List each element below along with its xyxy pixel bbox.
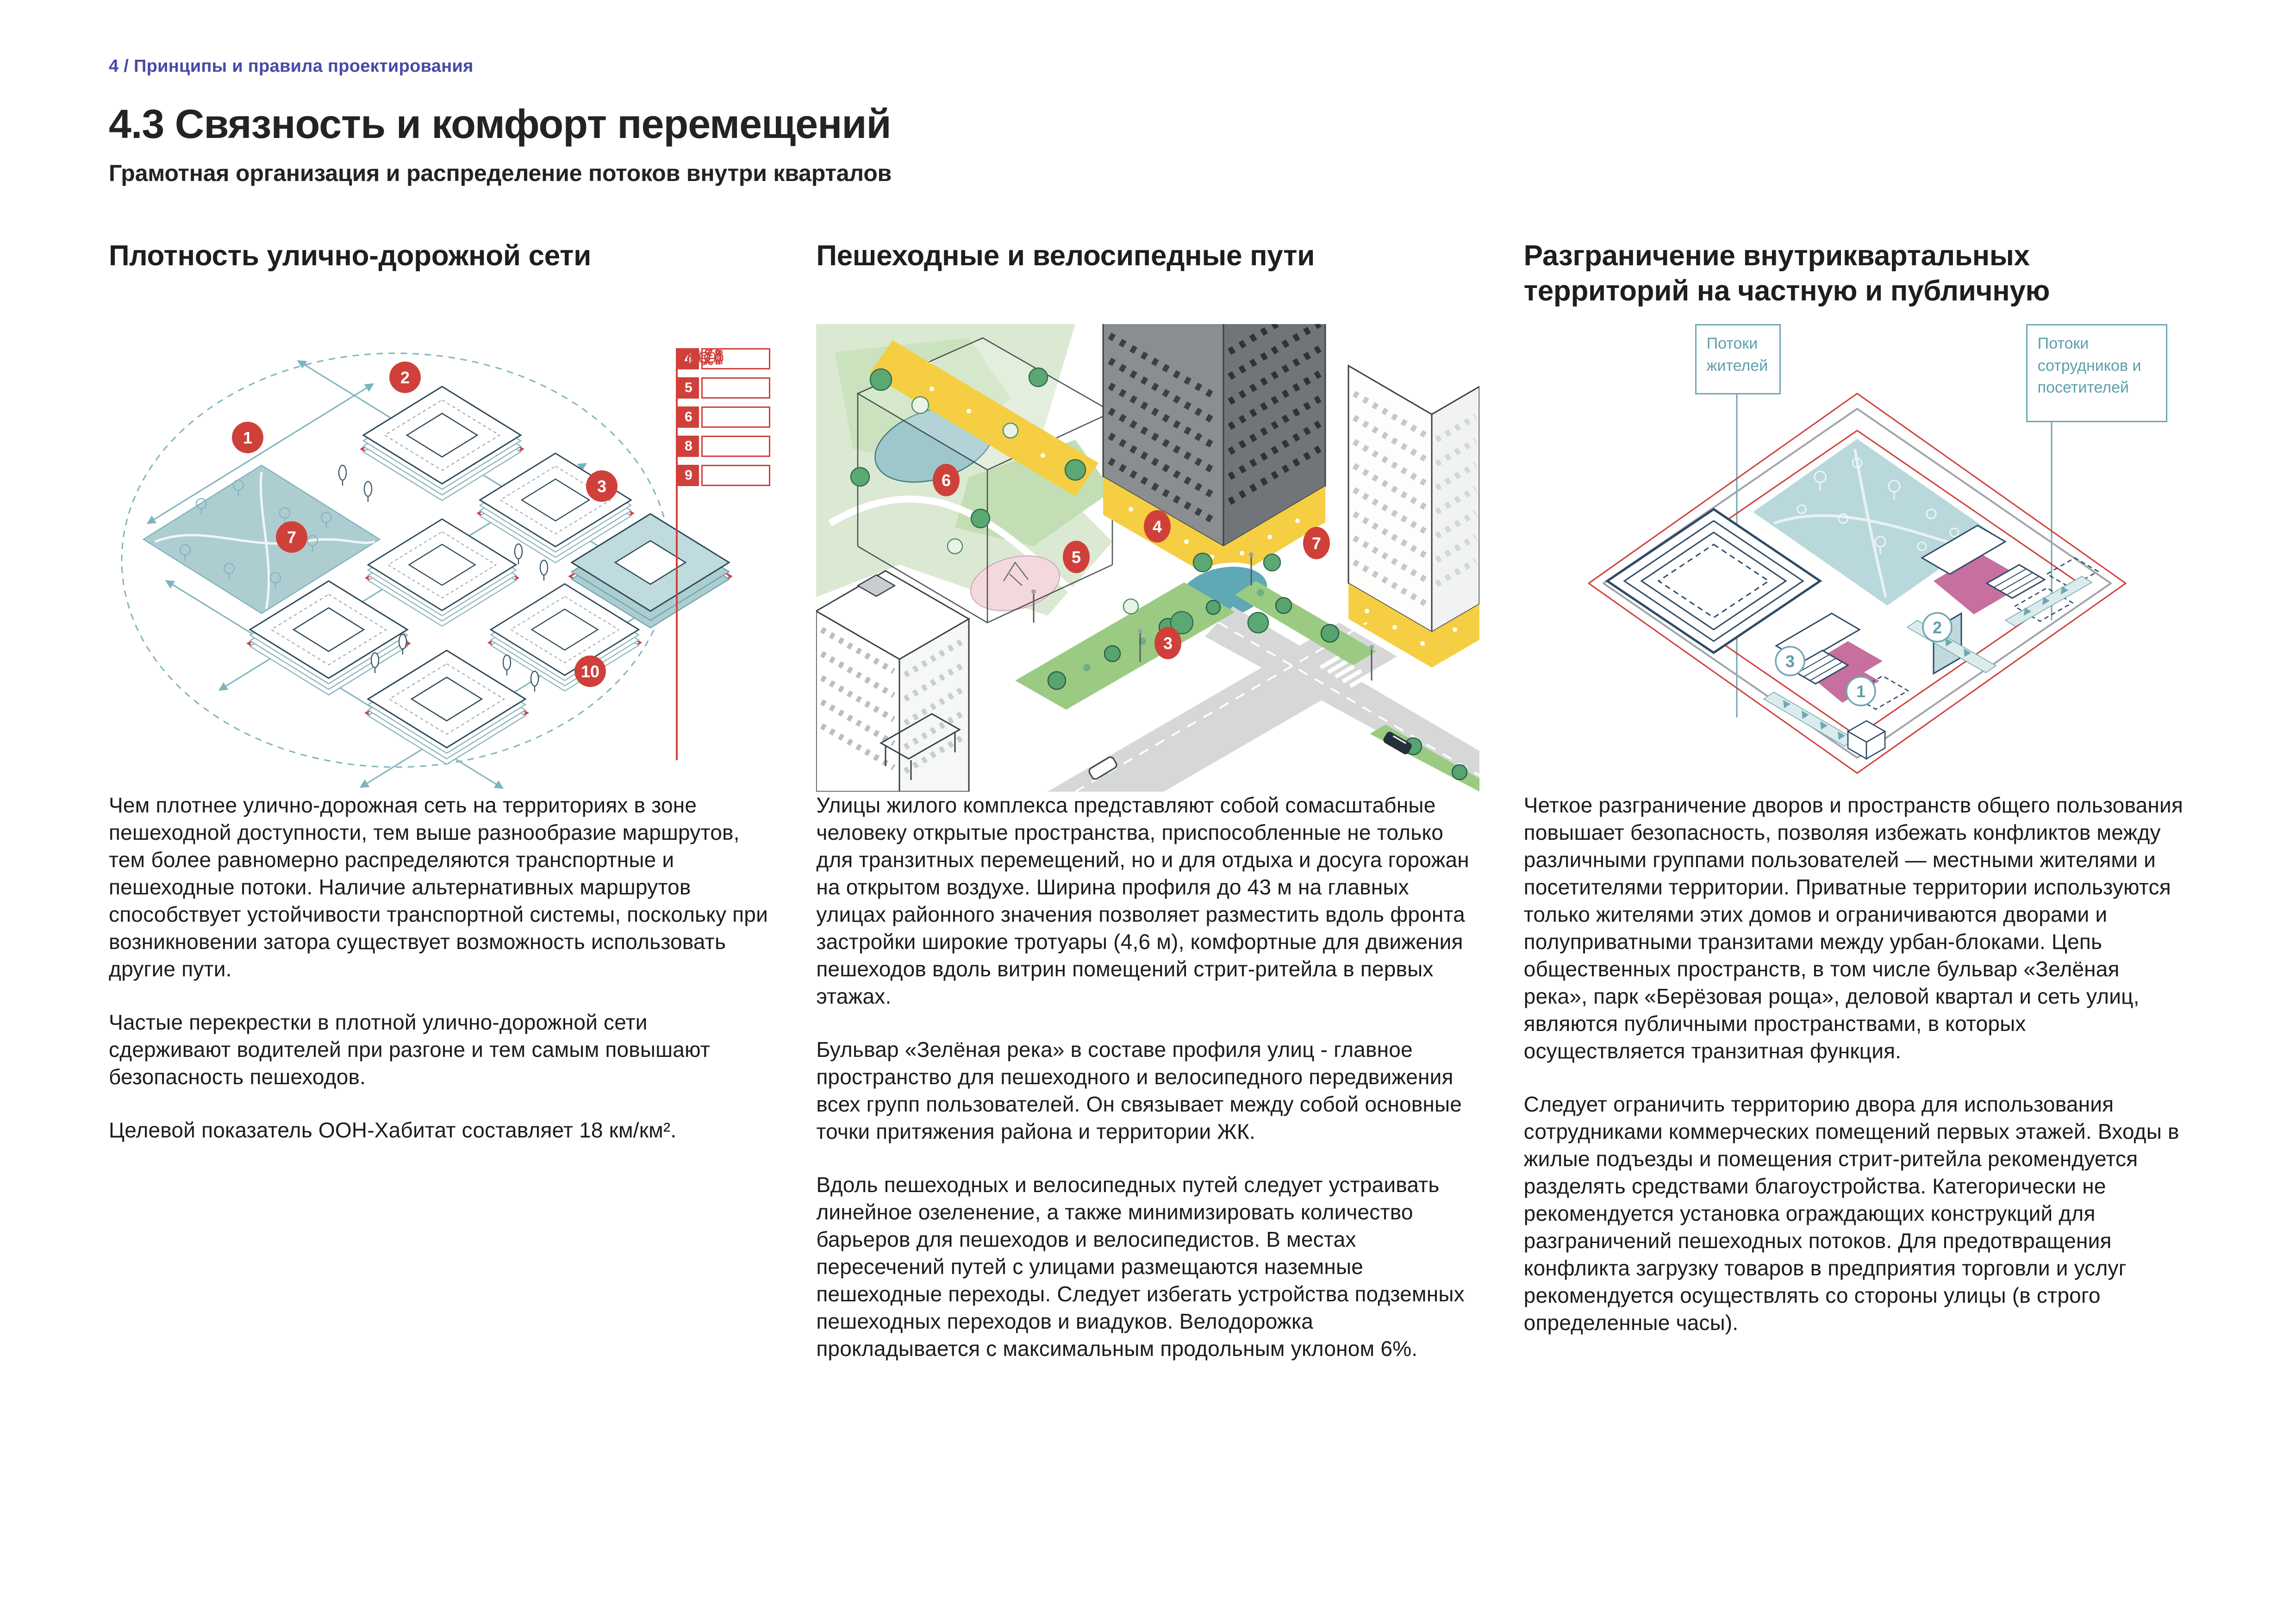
- marker-10: 10: [574, 656, 606, 687]
- lower-left-building: [816, 571, 969, 792]
- svg-text:3: 3: [1163, 634, 1173, 653]
- white-building: [1348, 366, 1479, 632]
- figure-streetscape: 6 5 4 3 7: [816, 324, 1479, 792]
- column-body-ped-bike: Улицы жилого комплекса представляют собо…: [816, 792, 1479, 1362]
- svg-text:7: 7: [1312, 534, 1321, 553]
- column-ped-bike-paths: Пешеходные и велосипедные пути: [816, 238, 1479, 1362]
- paragraph: Бульвар «Зелёная река» в составе профиля…: [816, 1036, 1479, 1145]
- svg-text:1: 1: [243, 428, 252, 447]
- legend-number: 9: [678, 465, 699, 486]
- small-building: [1848, 721, 1885, 759]
- paragraph: Частые перекрестки в плотной улично-доро…: [109, 1009, 772, 1091]
- marker-1: 1: [232, 422, 263, 453]
- marker-5: 5: [1063, 541, 1090, 573]
- svg-text:5: 5: [1072, 548, 1081, 567]
- marker-2: 2: [1923, 613, 1952, 642]
- page-title: 4.3 Связность и комфорт перемещений: [109, 100, 2187, 148]
- marker-6: 6: [933, 464, 960, 496]
- svg-text:2: 2: [1933, 618, 1942, 637]
- breadcrumb: 4 / Принципы и правила проектирования: [109, 0, 2187, 76]
- legend-number: 8: [678, 436, 699, 457]
- column-territory-division: Разграничение внутриквартальных территор…: [1524, 238, 2187, 1362]
- svg-text:10: 10: [581, 662, 599, 681]
- svg-text:1: 1: [1856, 682, 1865, 701]
- streetscape-illustration: 6 5 4 3 7: [816, 324, 1479, 792]
- marker-4: 4: [1144, 510, 1171, 543]
- street-network-diagram: 1 2 7 3 10: [109, 324, 772, 792]
- tram-icon: [678, 348, 737, 366]
- paragraph: Улицы жилого комплекса представляют собо…: [816, 792, 1479, 1010]
- page-subtitle: Грамотная организация и распределение по…: [109, 160, 2187, 187]
- figure-legend: 4 5: [678, 348, 770, 486]
- column-heading-street-network: Плотность улично-дорожной сети: [109, 238, 772, 324]
- marker-1: 1: [1847, 677, 1875, 706]
- marker-3: 3: [1154, 627, 1181, 659]
- flow-label-residents: Потоки жителей: [1695, 324, 1781, 394]
- legend-row: 5: [678, 377, 770, 399]
- svg-text:2: 2: [400, 368, 410, 387]
- marker-7: 7: [1303, 527, 1330, 559]
- paragraph: Целевой показатель ООН-Хабитат составляе…: [109, 1117, 772, 1144]
- column-street-network: Плотность улично-дорожной сети: [109, 238, 772, 1362]
- marker-3: 3: [1776, 647, 1804, 675]
- legend-number: 6: [678, 406, 699, 428]
- legend-number: 5: [678, 377, 699, 399]
- legend-row: 9: [678, 465, 770, 486]
- marker-2: 2: [389, 362, 421, 393]
- column-body-street-network: Чем плотнее улично-дорожная сеть на терр…: [109, 792, 772, 1144]
- figure-street-network: 1 2 7 3 10 4: [109, 324, 772, 792]
- svg-text:4: 4: [1153, 517, 1162, 536]
- flow-label-staff: Потоки сотрудников и посетителей: [2026, 324, 2167, 422]
- svg-text:6: 6: [942, 471, 951, 490]
- svg-text:7: 7: [287, 528, 296, 547]
- svg-text:3: 3: [1785, 652, 1795, 671]
- legend-row: 8 P: [678, 436, 770, 457]
- paragraph: Вдоль пешеходных и велосипедных путей сл…: [816, 1171, 1479, 1362]
- residential-cluster-a: [1764, 613, 1908, 746]
- column-heading-territory: Разграничение внутриквартальных территор…: [1524, 238, 2187, 324]
- paragraph: Четкое разграничение дворов и пространст…: [1524, 792, 2187, 1065]
- column-heading-ped-bike: Пешеходные и велосипедные пути: [816, 238, 1479, 324]
- figure-territory-division: 3 1 2 Потоки жителей Потоки сотрудников …: [1524, 324, 2187, 792]
- paragraph: Следует ограничить территорию двора для …: [1524, 1091, 2187, 1337]
- svg-text:3: 3: [597, 477, 606, 496]
- content-columns: Плотность улично-дорожной сети: [109, 238, 2187, 1362]
- column-body-territory: Четкое разграничение дворов и пространст…: [1524, 792, 2187, 1337]
- paragraph: Чем плотнее улично-дорожная сеть на терр…: [109, 792, 772, 983]
- marker-7: 7: [276, 521, 307, 553]
- document-page: 4 / Принципы и правила проектирования 4.…: [0, 0, 2296, 1624]
- marker-3: 3: [586, 470, 618, 502]
- legend-row: 6: [678, 406, 770, 428]
